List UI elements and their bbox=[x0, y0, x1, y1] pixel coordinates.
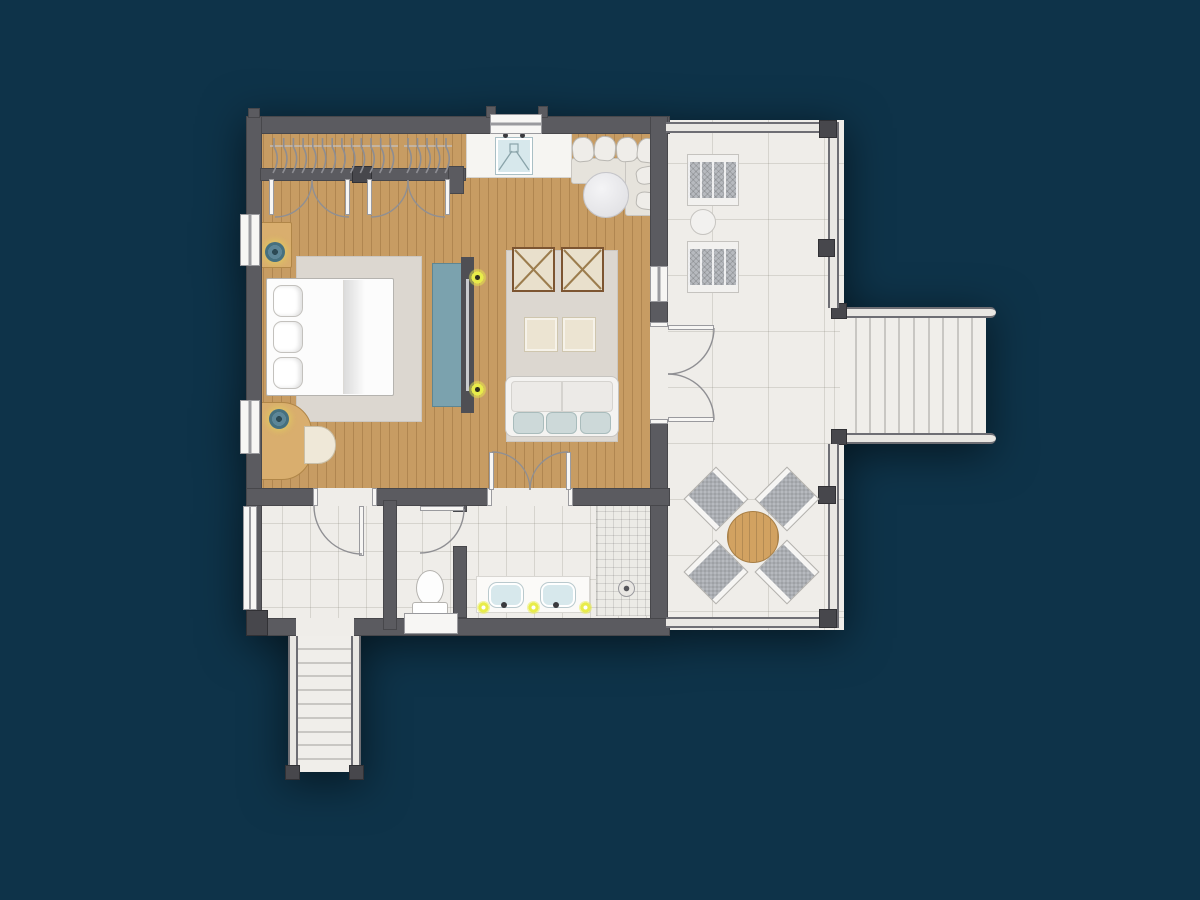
door-jamb bbox=[313, 488, 318, 506]
railing-post bbox=[819, 609, 837, 628]
stair-step-line bbox=[297, 662, 353, 664]
bar-sink bbox=[496, 138, 532, 174]
wc-door-leaf bbox=[420, 506, 464, 511]
armchair-cross-weave bbox=[514, 249, 553, 290]
terrace-railing-right-lower bbox=[828, 444, 839, 628]
french-door-leaf bbox=[668, 325, 714, 330]
stair-step-line bbox=[297, 758, 353, 760]
closet-door-jamb bbox=[367, 179, 372, 215]
railing-post bbox=[831, 429, 847, 445]
french-door-leaf bbox=[668, 417, 714, 422]
stair-step-line bbox=[297, 689, 353, 691]
armchair bbox=[512, 247, 555, 292]
wall-top bbox=[246, 116, 670, 134]
stair-step-line bbox=[913, 318, 915, 434]
tv-screen-line bbox=[466, 279, 469, 391]
corner-sofa-pillow bbox=[615, 136, 639, 162]
right-staircase-railing-bottom bbox=[838, 433, 996, 444]
stair-step-line bbox=[297, 744, 353, 746]
bed-pillow bbox=[273, 357, 303, 389]
vanity-light bbox=[579, 601, 592, 614]
bed-pillow bbox=[273, 285, 303, 317]
terrace-lounge-chair bbox=[688, 242, 738, 292]
vanity-faucet bbox=[553, 602, 559, 608]
stair-step-line bbox=[297, 675, 353, 677]
window-left-upper bbox=[240, 214, 260, 266]
window-right bbox=[650, 266, 668, 302]
toilet-bowl bbox=[416, 570, 444, 606]
stair-step-line bbox=[297, 648, 353, 650]
railing-post bbox=[818, 239, 835, 257]
bed bbox=[266, 278, 394, 396]
stair-step-line bbox=[971, 318, 973, 434]
sofa-backrest bbox=[511, 381, 613, 412]
shower-floor bbox=[596, 502, 652, 616]
terrace-railing-bottom bbox=[666, 617, 826, 628]
sofa-seat-cushion bbox=[546, 412, 577, 434]
door-jamb bbox=[372, 488, 377, 506]
coffee-table bbox=[524, 317, 558, 352]
railing-post bbox=[349, 765, 364, 780]
reading-light bbox=[468, 268, 487, 287]
bottom-staircase-railing-right bbox=[351, 629, 361, 777]
armchair-cross-weave bbox=[563, 249, 602, 290]
coffee-table bbox=[562, 317, 596, 352]
closet-door-jamb bbox=[445, 179, 450, 215]
closet-end-stub bbox=[448, 166, 464, 194]
stair-step-line bbox=[297, 717, 353, 719]
door-jamb bbox=[650, 322, 668, 327]
stair-step-line bbox=[957, 318, 959, 434]
stair-step-line bbox=[898, 318, 900, 434]
door-opening-corridor bbox=[490, 488, 570, 506]
reading-light bbox=[468, 380, 487, 399]
right-staircase-steps bbox=[840, 318, 986, 434]
stair-step-line bbox=[928, 318, 930, 434]
door-leaf bbox=[566, 452, 571, 490]
tv-console bbox=[432, 263, 464, 407]
terrace-railing-top bbox=[666, 122, 826, 133]
stair-step-line bbox=[942, 318, 944, 434]
sofa bbox=[505, 376, 619, 437]
vanity-faucet bbox=[501, 602, 507, 608]
round-side-table bbox=[583, 172, 629, 218]
wall-bottom-main bbox=[246, 488, 670, 506]
railing-post bbox=[285, 765, 300, 780]
bottom-staircase-steps bbox=[297, 634, 353, 772]
bed-pillow bbox=[273, 321, 303, 353]
floor-plan bbox=[0, 0, 1200, 900]
stair-step-line bbox=[869, 318, 871, 434]
stair-opening bbox=[296, 618, 354, 636]
stair-step-line bbox=[855, 318, 857, 434]
corner-sofa-pillow bbox=[593, 135, 617, 162]
vanity-light bbox=[527, 601, 540, 614]
wall-landing-bathroom-divider bbox=[383, 500, 397, 630]
wall-corner-block bbox=[246, 610, 268, 636]
desk-lamp bbox=[269, 409, 289, 429]
door-leaf bbox=[489, 452, 494, 490]
closet-door-jamb bbox=[345, 179, 350, 215]
vanity-light bbox=[477, 601, 490, 614]
bathroom-niche bbox=[404, 613, 458, 634]
sofa-seat-cushion bbox=[580, 412, 611, 434]
right-staircase-railing-top bbox=[838, 307, 996, 318]
door-opening-terrace bbox=[650, 326, 668, 420]
terrace-railing-right-upper bbox=[828, 122, 839, 308]
sofa-seat-cushion bbox=[513, 412, 544, 434]
window-top bbox=[490, 114, 542, 134]
railing-post bbox=[819, 120, 837, 138]
window-landing bbox=[243, 506, 257, 610]
bottom-staircase-railing-left bbox=[288, 629, 298, 777]
door-jamb bbox=[568, 488, 573, 506]
stair-step-line bbox=[884, 318, 886, 434]
terrace-lounge-chair bbox=[688, 155, 738, 205]
door-jamb bbox=[650, 419, 668, 424]
window-left-lower bbox=[240, 400, 260, 454]
terrace-side-table bbox=[690, 209, 716, 235]
nightstand-lamp bbox=[265, 242, 285, 262]
door-opening-landing bbox=[316, 488, 374, 506]
door-jamb bbox=[487, 488, 492, 506]
sink-basin-lines bbox=[498, 140, 530, 172]
stair-step-line bbox=[297, 703, 353, 705]
closet-door-jamb bbox=[269, 179, 274, 215]
armchair bbox=[561, 247, 604, 292]
wall-nub bbox=[248, 108, 260, 118]
door-leaf bbox=[359, 506, 364, 556]
stair-step-line bbox=[297, 731, 353, 733]
shower-head bbox=[618, 580, 635, 597]
bed-duvet-fold bbox=[343, 280, 369, 394]
wc-partition-wall bbox=[453, 546, 467, 618]
railing-post bbox=[818, 486, 836, 504]
